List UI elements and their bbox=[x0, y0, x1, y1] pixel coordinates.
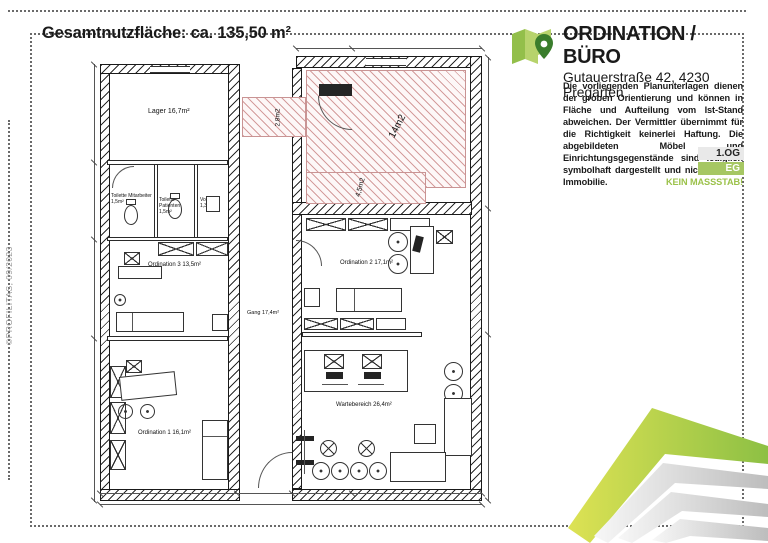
cabinet bbox=[340, 318, 374, 330]
floor-badge-eg: EG bbox=[698, 162, 744, 175]
page-title: Gesamtnutzfläche: ca. 135,50 m² bbox=[42, 24, 291, 43]
entrance-door bbox=[319, 84, 352, 96]
cabinet bbox=[158, 242, 194, 256]
wall bbox=[100, 489, 240, 501]
floor-badge-1og: 1.OG bbox=[698, 147, 744, 160]
dimension-line bbox=[94, 64, 95, 502]
shelf bbox=[110, 440, 126, 470]
room-label-ordination2: Ordination 2 17,1m² bbox=[340, 260, 393, 266]
interior-wall bbox=[107, 160, 228, 165]
exam-table bbox=[202, 420, 228, 480]
dimension-line bbox=[488, 57, 489, 501]
office-chair bbox=[124, 252, 140, 265]
interior-wall bbox=[107, 336, 228, 341]
stool bbox=[118, 404, 133, 419]
stool bbox=[114, 294, 126, 306]
cabinet bbox=[304, 318, 338, 330]
interior-wall bbox=[194, 164, 198, 238]
exam-table bbox=[116, 312, 184, 332]
brochure-page: ©PROFILITAS, 09/2023 Gesamtnutzfläche: c… bbox=[0, 0, 768, 543]
window bbox=[366, 58, 406, 66]
coat-rack bbox=[296, 436, 314, 441]
office-chair bbox=[324, 354, 344, 369]
exam-table-pillow-line bbox=[132, 313, 133, 331]
chair bbox=[358, 440, 375, 457]
reception-desk bbox=[304, 350, 408, 392]
map-pin-icon bbox=[511, 26, 559, 70]
window bbox=[150, 66, 190, 73]
room-label-gang: Gang 17,4m² bbox=[247, 310, 279, 316]
office-chair bbox=[436, 230, 453, 244]
wall bbox=[292, 489, 482, 501]
outdoor-area: 2,8m2 bbox=[242, 97, 306, 137]
interior-wall bbox=[107, 237, 228, 241]
outdoor-label: 2,8m2 bbox=[275, 108, 282, 126]
chair bbox=[444, 362, 463, 381]
chair bbox=[350, 462, 368, 480]
floor-selector: 1.OG EG bbox=[698, 147, 744, 177]
coat-rack bbox=[296, 460, 314, 465]
room-label-ordination1: Ordination 1 16,1m² bbox=[138, 430, 191, 436]
exam-table-pillow-line bbox=[354, 289, 355, 311]
stool bbox=[140, 404, 155, 419]
sofa bbox=[390, 452, 446, 482]
sink bbox=[212, 314, 228, 331]
wall bbox=[100, 64, 110, 501]
toilet bbox=[168, 199, 182, 219]
room-label-lager: Lager 16,7m² bbox=[148, 108, 190, 115]
toilet bbox=[124, 205, 138, 225]
cabinet bbox=[196, 242, 228, 256]
dimension-line bbox=[100, 504, 482, 505]
keyboard bbox=[364, 372, 381, 379]
chair bbox=[320, 440, 337, 457]
desk-edge-line bbox=[322, 384, 348, 385]
dimension-line bbox=[296, 48, 482, 49]
interior-wall bbox=[154, 164, 158, 238]
wall bbox=[292, 68, 302, 98]
room-label-wartebereich: Wartebereich 26,4m² bbox=[336, 402, 392, 408]
chair bbox=[312, 462, 330, 480]
sofa bbox=[444, 398, 472, 456]
desk bbox=[118, 266, 162, 279]
watermark: ©PROFILITAS, 09/2023 bbox=[4, 246, 14, 345]
chair bbox=[331, 462, 349, 480]
sink bbox=[304, 288, 320, 307]
coat-rack-pole bbox=[304, 430, 305, 474]
cabinet bbox=[376, 318, 406, 330]
interior-wall bbox=[302, 332, 422, 337]
cabinet bbox=[306, 218, 346, 231]
keyboard bbox=[326, 372, 343, 379]
desk-edge-line bbox=[358, 384, 384, 385]
table bbox=[414, 424, 436, 444]
cabinet bbox=[348, 218, 388, 231]
chair bbox=[369, 462, 387, 480]
frame-top-line bbox=[8, 10, 746, 12]
stool bbox=[388, 232, 408, 252]
exam-table bbox=[336, 288, 402, 312]
office-chair bbox=[362, 354, 382, 369]
sink bbox=[206, 196, 220, 212]
outdoor-label: 14m2 bbox=[387, 113, 408, 140]
exam-table-pillow-line bbox=[203, 436, 227, 437]
office-chair bbox=[126, 360, 142, 373]
building-decoration bbox=[568, 388, 768, 543]
outdoor-area: 4,5m2 bbox=[306, 172, 426, 204]
header-title: ORDINATION / BÜRO bbox=[563, 23, 748, 69]
wall bbox=[228, 64, 240, 501]
no-scale-note: KEIN MASSSTAB! bbox=[666, 177, 743, 189]
stool bbox=[388, 254, 408, 274]
outdoor-label: 4,5m2 bbox=[355, 177, 367, 198]
